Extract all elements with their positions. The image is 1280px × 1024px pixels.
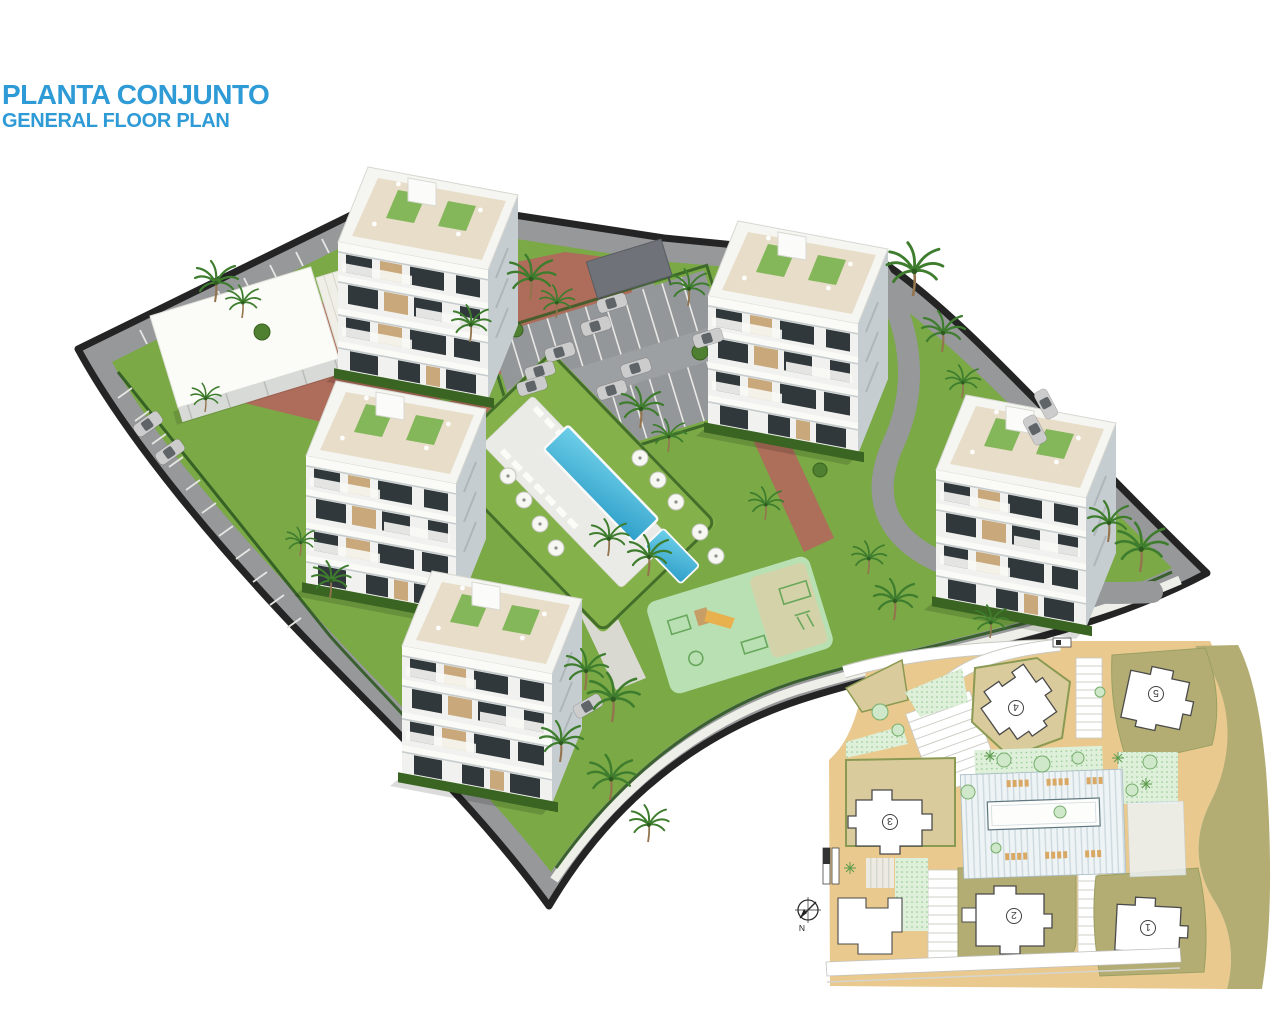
page-header: PLANTA CONJUNTO GENERAL FLOOR PLAN <box>2 80 269 133</box>
site-render-scene: 1 2 3 4 5 <box>0 0 1280 1024</box>
render-building-northwest <box>326 167 518 411</box>
inset-parking-south-left <box>928 870 958 960</box>
inset-building-number-5: 5 <box>1153 687 1159 699</box>
inset-building-number-1: 1 <box>1145 921 1151 933</box>
north-label: N <box>799 923 805 933</box>
inset-building-2 <box>962 886 1052 954</box>
inset-building-number-2: 2 <box>1011 909 1017 921</box>
page-title: PLANTA CONJUNTO <box>2 80 269 109</box>
palm-icon <box>630 805 669 842</box>
inset-terrace <box>1127 801 1186 877</box>
inset-building-number-3: 3 <box>887 815 893 827</box>
page: PLANTA CONJUNTO GENERAL FLOOR PLAN <box>0 0 1280 1024</box>
render-building-east <box>924 395 1116 639</box>
render-building-south <box>390 571 582 815</box>
render-building-north <box>696 221 888 465</box>
inset-parking-east <box>1076 658 1102 738</box>
site-plan-inset: 1 2 3 4 5 <box>795 638 1270 989</box>
page-subtitle: GENERAL FLOOR PLAN <box>2 109 269 133</box>
inset-gate <box>1053 638 1071 647</box>
inset-building-number-4: 4 <box>1013 701 1019 713</box>
north-compass-icon: N <box>795 897 821 933</box>
